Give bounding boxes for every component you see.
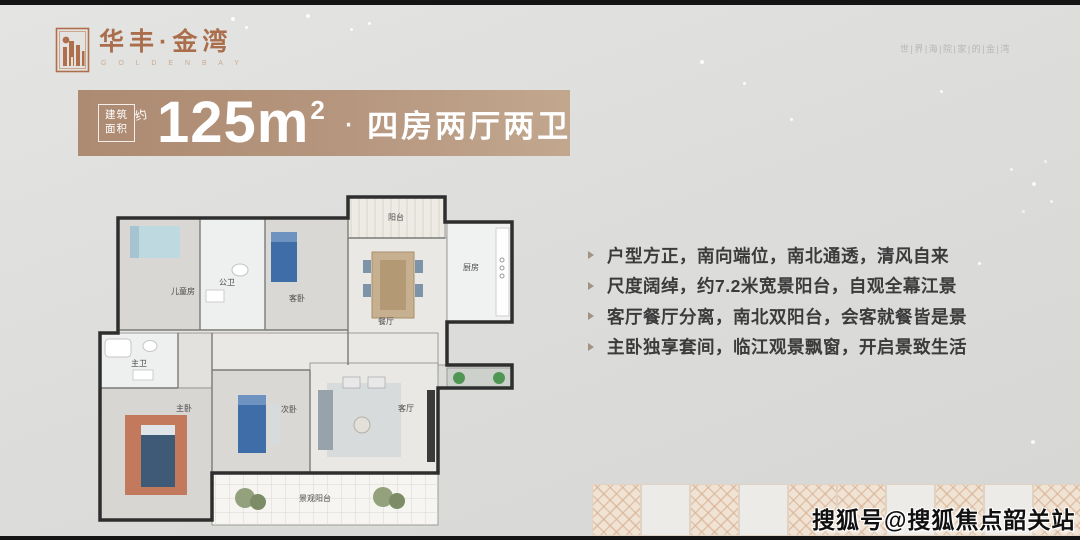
decor-tile xyxy=(592,484,641,536)
title-banner: 建筑 面积 约 125m2 · 四房两厅两卫 xyxy=(78,90,570,156)
svg-text:景观阳台: 景观阳台 xyxy=(299,493,331,503)
decor-tile xyxy=(739,484,788,536)
approx-label: 约 xyxy=(133,105,149,124)
decor-tile xyxy=(690,484,739,536)
area-label-line2: 面积 xyxy=(105,123,128,137)
svg-text:次卧: 次卧 xyxy=(281,404,297,414)
svg-text:阳台: 阳台 xyxy=(388,212,404,222)
brand-logo: 华丰·金湾 G O L D E N B A Y xyxy=(55,27,244,73)
slogan-text: 世|界|海|院|家|的|金|湾 xyxy=(900,42,1011,55)
svg-text:儿童房: 儿童房 xyxy=(171,286,195,296)
watermark-text: 搜狐号@搜狐焦点韶关站 xyxy=(812,501,1075,535)
bottom-letterbox-bar xyxy=(0,536,1080,540)
svg-text:主卧: 主卧 xyxy=(176,403,192,413)
promo-image: 华丰·金湾 G O L D E N B A Y 世|界|海|院|家|的|金|湾 … xyxy=(0,0,1080,540)
top-letterbox-bar xyxy=(0,0,1080,5)
svg-text:客卧: 客卧 xyxy=(289,293,305,303)
triangle-bullet-icon xyxy=(588,282,594,290)
svg-text:餐厅: 餐厅 xyxy=(378,317,394,326)
triangle-bullet-icon xyxy=(588,343,594,351)
feature-item: 尺度阔绰，约7.2米宽景阳台，自观全幕江景 xyxy=(588,271,967,302)
brand-text-block: 华丰·金湾 G O L D E N B A Y xyxy=(99,27,244,67)
layout-label: 四房两厅两卫 xyxy=(367,101,571,146)
feature-text: 尺度阔绰，约7.2米宽景阳台，自观全幕江景 xyxy=(607,273,957,298)
svg-text:厨房: 厨房 xyxy=(463,262,479,272)
floorplan-diagram: 阳台厨房儿童房公卫客卧餐厅主卫主卧次卧客厅景观阳台 xyxy=(75,190,585,535)
area-superscript: 2 xyxy=(310,95,325,125)
area-label-line1: 建筑 xyxy=(105,109,128,123)
brand-name: 华丰·金湾 xyxy=(99,27,244,57)
triangle-bullet-icon xyxy=(588,251,594,259)
brand-logo-icon xyxy=(55,27,90,73)
feature-item: 主卧独享套间，临江观景飘窗，开启景致生活 xyxy=(588,332,967,363)
feature-item: 客厅餐厅分离，南北双阳台，会客就餐皆是景 xyxy=(588,301,967,332)
separator-dot: · xyxy=(343,104,354,143)
svg-text:客厅: 客厅 xyxy=(398,403,414,413)
feature-text: 客厅餐厅分离，南北双阳台，会客就餐皆是景 xyxy=(607,304,967,329)
feature-text: 户型方正，南向端位，南北通透，清风自来 xyxy=(607,243,949,268)
svg-text:主卫: 主卫 xyxy=(131,358,147,368)
brand-subtitle: G O L D E N B A Y xyxy=(101,60,244,67)
feature-item: 户型方正，南向端位，南北通透，清风自来 xyxy=(588,240,967,271)
decor-tile xyxy=(641,484,690,536)
triangle-bullet-icon xyxy=(588,312,594,320)
feature-text: 主卧独享套间，临江观景飘窗，开启景致生活 xyxy=(607,334,967,359)
area-value: 125m2 xyxy=(157,94,326,152)
area-label-box: 建筑 面积 xyxy=(98,104,135,142)
feature-list: 户型方正，南向端位，南北通透，清风自来 尺度阔绰，约7.2米宽景阳台，自观全幕江… xyxy=(588,240,967,362)
svg-text:公卫: 公卫 xyxy=(219,278,235,287)
